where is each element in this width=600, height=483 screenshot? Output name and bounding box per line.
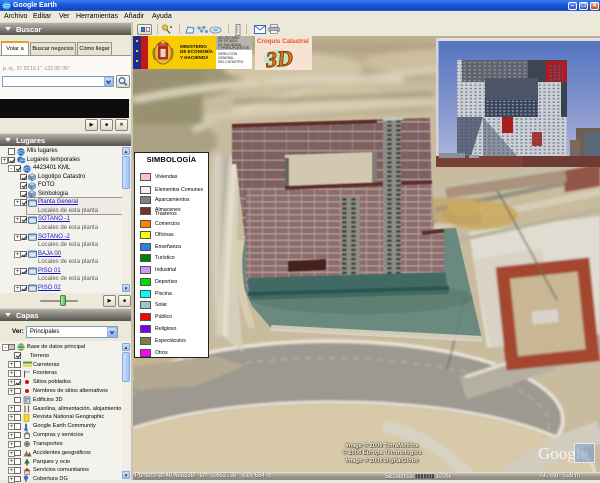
- svg-text:3D: 3D: [264, 45, 294, 70]
